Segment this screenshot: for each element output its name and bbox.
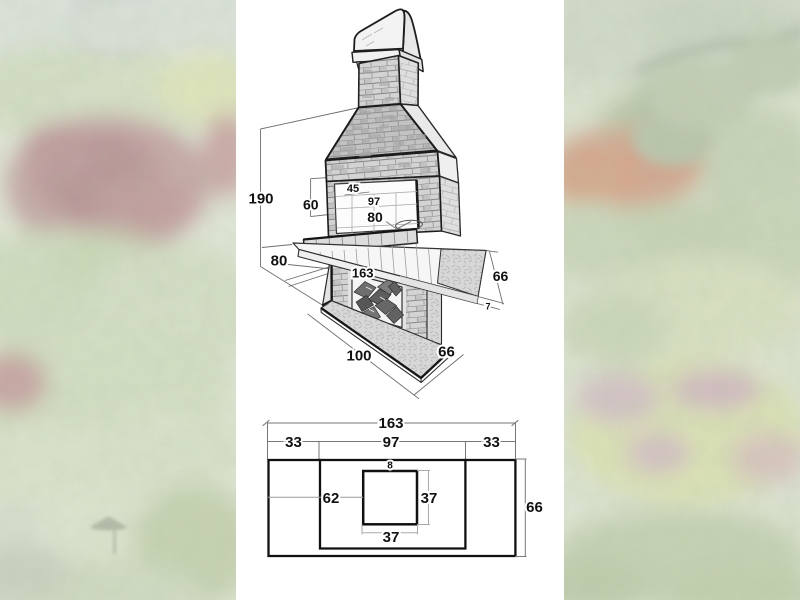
svg-text:7: 7 <box>485 302 490 312</box>
svg-text:37: 37 <box>421 490 438 507</box>
svg-text:60: 60 <box>303 197 319 213</box>
svg-text:190: 190 <box>248 191 273 208</box>
svg-text:163: 163 <box>352 266 374 281</box>
svg-text:33: 33 <box>285 434 302 451</box>
svg-text:100: 100 <box>346 348 371 365</box>
svg-text:8: 8 <box>387 461 393 472</box>
svg-text:66: 66 <box>526 499 543 516</box>
svg-text:45: 45 <box>347 183 359 195</box>
svg-text:62: 62 <box>323 490 340 507</box>
svg-text:66: 66 <box>438 344 455 361</box>
svg-text:66: 66 <box>493 268 509 284</box>
svg-text:97: 97 <box>368 196 380 208</box>
svg-text:80: 80 <box>271 253 288 270</box>
svg-text:80: 80 <box>367 209 383 225</box>
svg-text:163: 163 <box>378 415 403 432</box>
svg-text:37: 37 <box>383 529 400 546</box>
svg-text:97: 97 <box>383 434 400 451</box>
svg-text:33: 33 <box>483 434 500 451</box>
